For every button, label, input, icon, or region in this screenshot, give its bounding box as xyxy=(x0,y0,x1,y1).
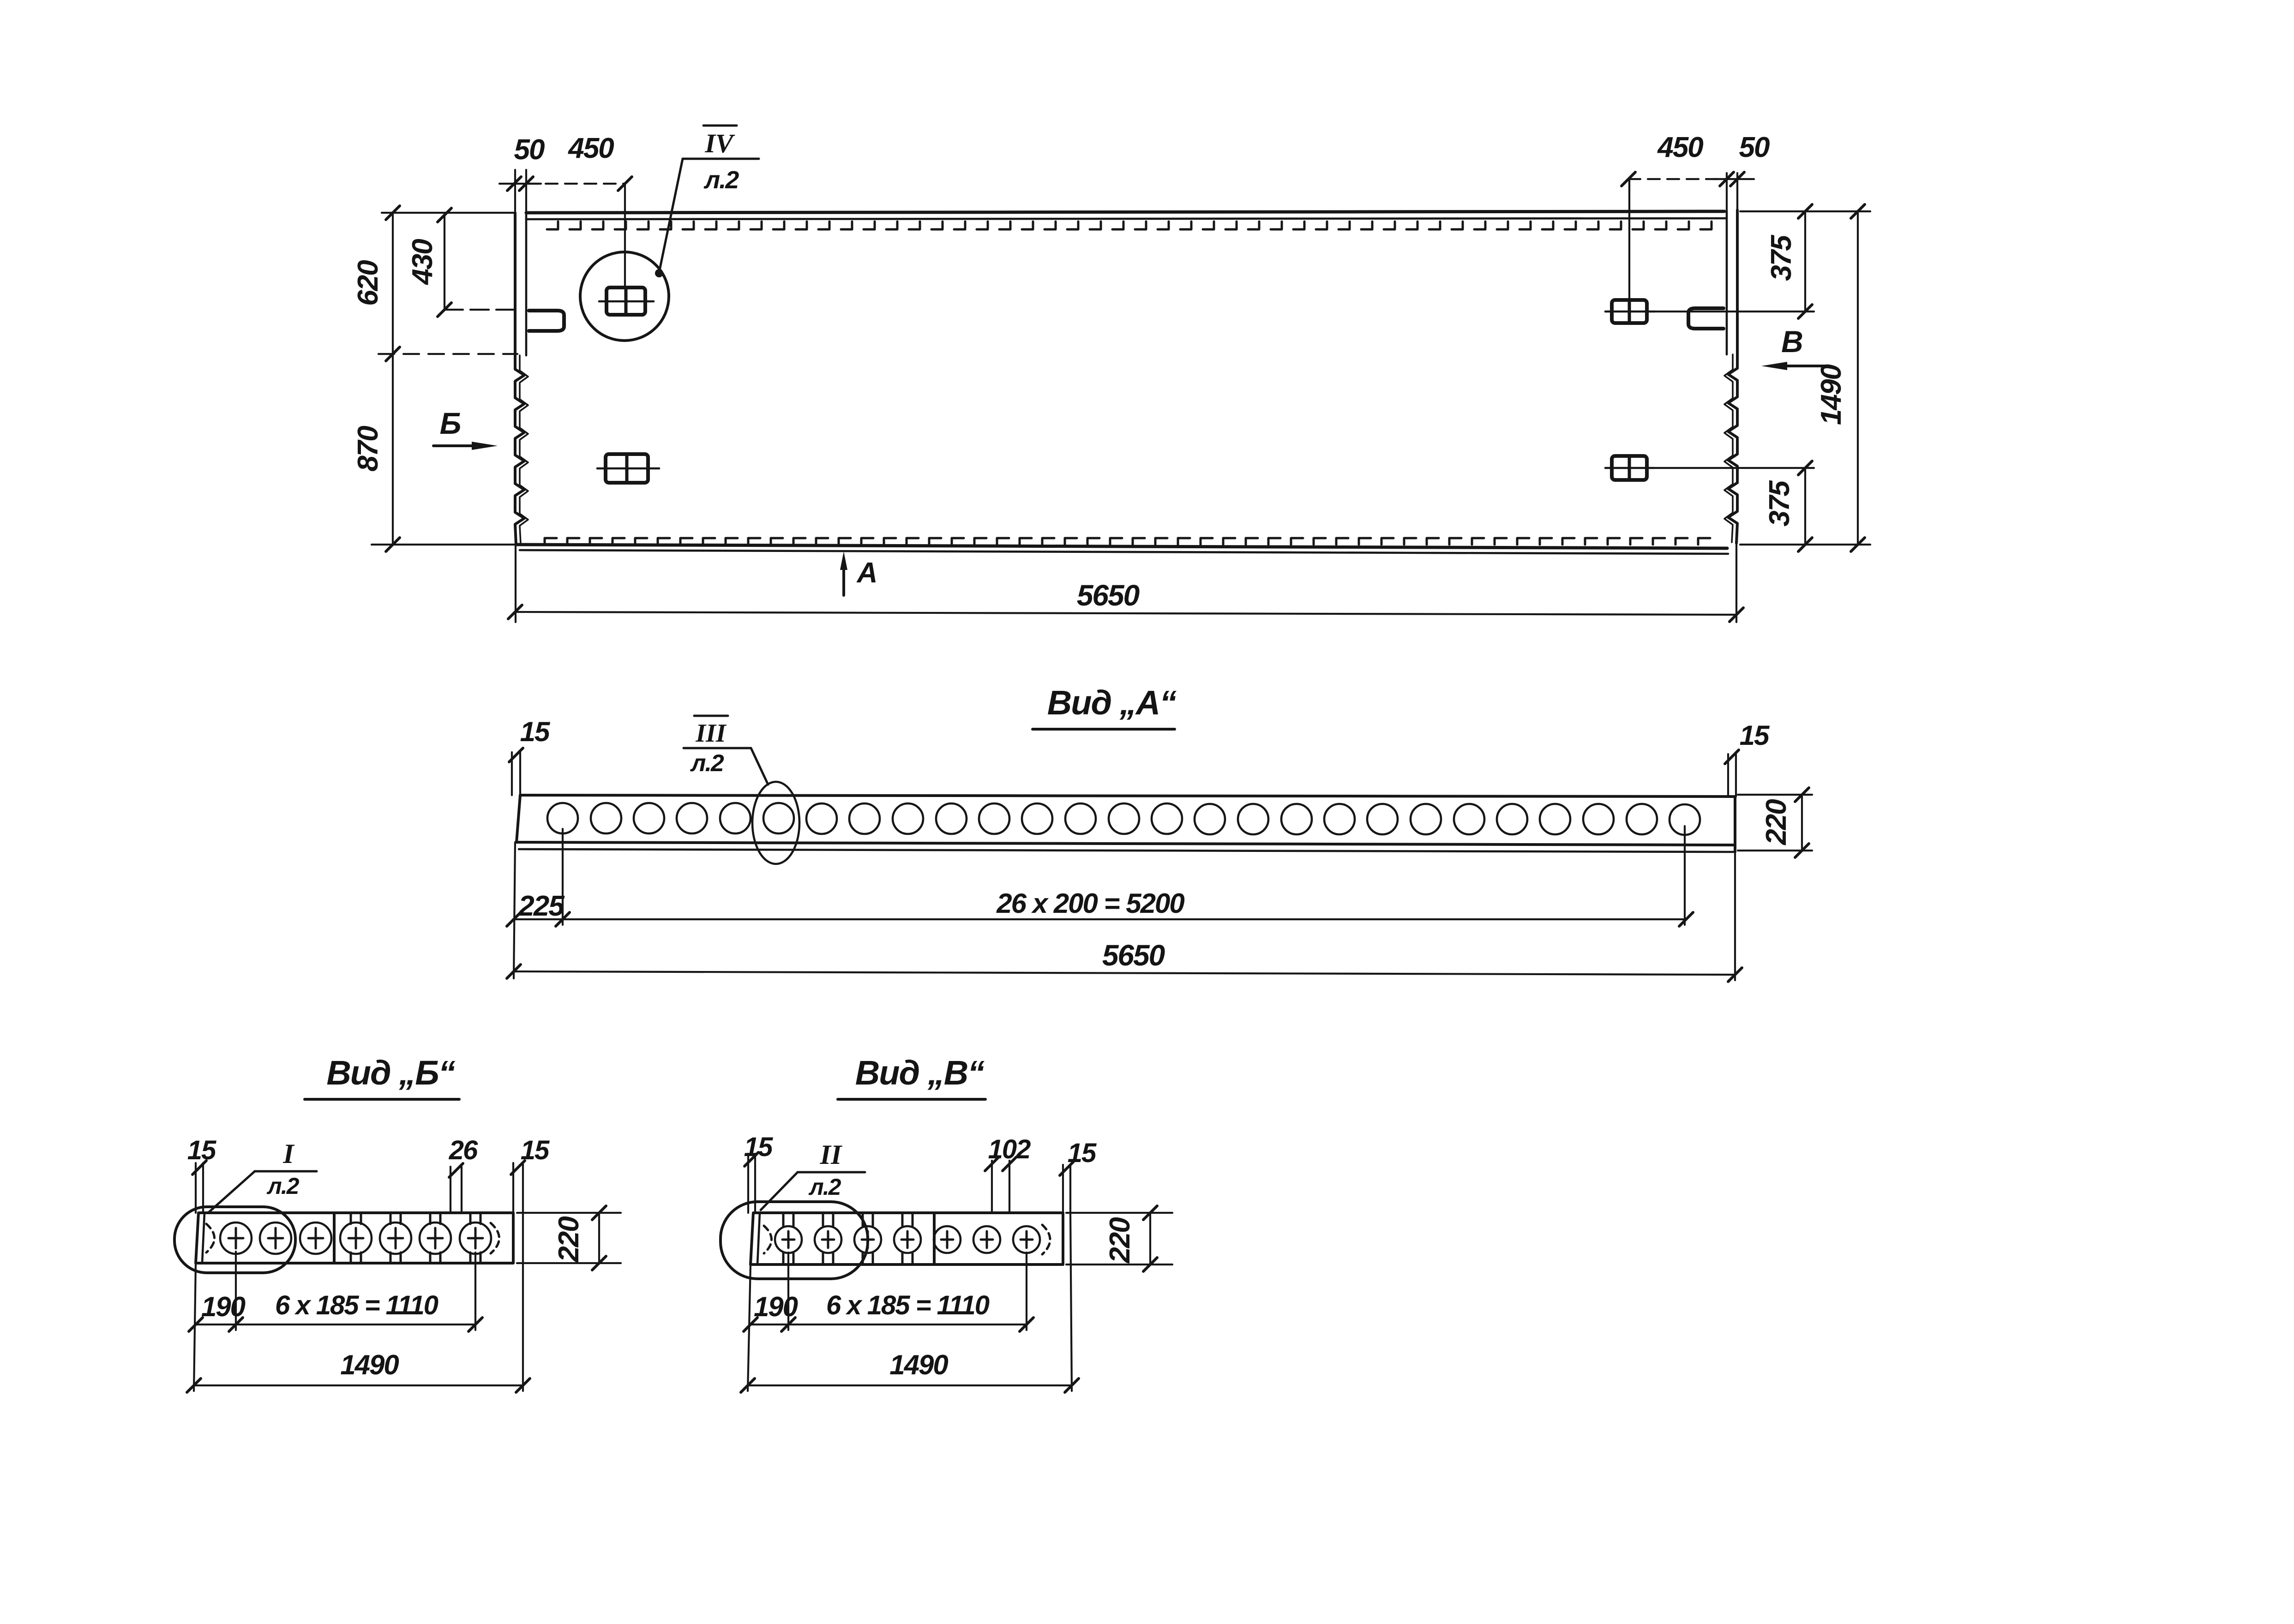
svg-text:Вид „А“: Вид „А“ xyxy=(1047,683,1177,722)
svg-text:190: 190 xyxy=(754,1291,798,1322)
svg-text:л.2: л.2 xyxy=(809,1174,841,1200)
svg-text:26 x 200 = 5200: 26 x 200 = 5200 xyxy=(996,888,1184,919)
svg-text:А: А xyxy=(856,557,877,589)
svg-text:IV: IV xyxy=(704,128,735,158)
svg-text:I: I xyxy=(282,1139,295,1169)
svg-text:II: II xyxy=(820,1139,843,1170)
svg-text:л.2: л.2 xyxy=(690,750,724,777)
svg-text:620: 620 xyxy=(352,260,384,306)
svg-text:л.2: л.2 xyxy=(703,166,739,194)
svg-text:6 x 185 = 1110: 6 x 185 = 1110 xyxy=(275,1290,438,1320)
svg-text:220: 220 xyxy=(1104,1217,1136,1264)
svg-text:375: 375 xyxy=(1764,480,1796,527)
svg-text:450: 450 xyxy=(567,132,614,164)
svg-text:л.2: л.2 xyxy=(267,1173,300,1199)
svg-text:1490: 1490 xyxy=(340,1349,399,1380)
svg-text:Б: Б xyxy=(440,406,461,440)
svg-text:5650: 5650 xyxy=(1077,579,1140,612)
svg-text:III: III xyxy=(695,719,727,748)
svg-text:15: 15 xyxy=(187,1135,216,1165)
svg-text:870: 870 xyxy=(352,426,384,472)
svg-text:В: В xyxy=(1781,324,1802,359)
svg-text:190: 190 xyxy=(201,1291,246,1322)
svg-text:430: 430 xyxy=(407,239,438,286)
svg-text:Вид „Б“: Вид „Б“ xyxy=(326,1054,455,1092)
svg-text:220: 220 xyxy=(1760,799,1792,845)
svg-text:50: 50 xyxy=(514,134,545,166)
svg-text:Вид „В“: Вид „В“ xyxy=(855,1054,985,1092)
svg-text:1490: 1490 xyxy=(889,1349,948,1380)
svg-text:225: 225 xyxy=(518,890,565,922)
svg-text:6 x 185 = 1110: 6 x 185 = 1110 xyxy=(826,1290,990,1320)
svg-text:26: 26 xyxy=(449,1135,478,1165)
svg-text:15: 15 xyxy=(1740,720,1770,751)
svg-text:15: 15 xyxy=(520,716,551,747)
svg-text:375: 375 xyxy=(1766,234,1797,281)
svg-text:50: 50 xyxy=(1739,132,1770,163)
svg-text:220: 220 xyxy=(553,1217,585,1263)
svg-text:5650: 5650 xyxy=(1102,939,1165,972)
svg-text:450: 450 xyxy=(1657,132,1703,163)
svg-text:1490: 1490 xyxy=(1815,365,1847,425)
